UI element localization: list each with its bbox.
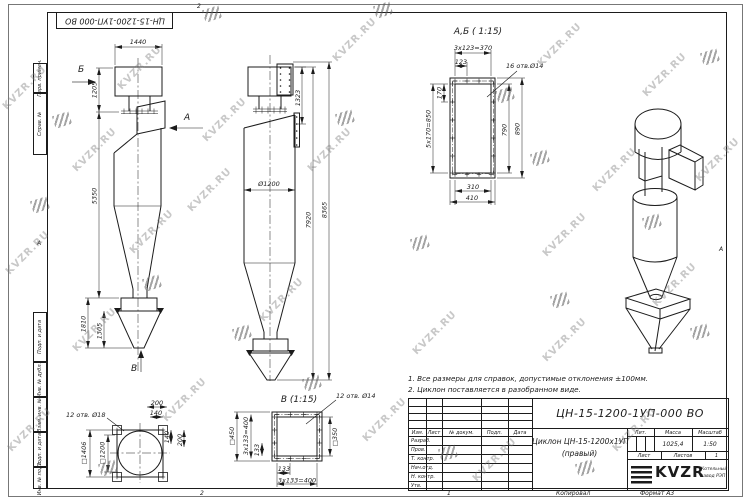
tb-org-line2: завод РЭП — [701, 474, 725, 479]
tb-header-list: Лист — [426, 430, 442, 436]
rivet-dot — [280, 91, 282, 93]
dim-ab-850: 5x170=850 — [425, 110, 433, 148]
view-side-elevation: 1440 1205 5350 1810 1305 Б А В — [72, 38, 203, 374]
dim-side-1305: 1305 — [96, 323, 104, 340]
rivet-dot — [280, 73, 282, 75]
view-detail-v: В (1:15) 12 отв. Ø14 □350 □450 3x133=400… — [228, 392, 375, 487]
tb-row-nkontr: Н. контр. — [411, 474, 435, 480]
dim-bl-200t: 200 — [151, 399, 163, 407]
tb-header-izm: Изм. — [409, 430, 426, 436]
view-arrow-b-label: Б — [78, 65, 84, 75]
tb-title-line2: (правый) — [532, 449, 627, 458]
rivet-dot — [289, 85, 291, 87]
kvzr-coil-icon — [631, 466, 652, 485]
dim-ab-370: 3x123=370 — [454, 44, 492, 52]
rivet-dot — [289, 91, 291, 93]
dim-v-400b: 3x133=400 — [278, 477, 316, 485]
tb-row-tkontr: Т. контр. — [411, 456, 434, 462]
footer-zone: 1 — [447, 490, 451, 497]
tb-doc-number: ЦН-15-1200-1УП-000 ВО — [532, 407, 728, 420]
rivet-dot — [289, 73, 291, 75]
dim-ab-170: 170 — [436, 87, 444, 99]
dim-v-400l: 3x133=400 — [242, 417, 250, 455]
view-front-elevation: 1323 Ø1200 7920 8365 — [244, 55, 332, 381]
tb-title-line1: Циклон ЦН-15-1200х1УП — [532, 437, 627, 446]
dim-ab-410: 410 — [466, 194, 478, 202]
footer-copied: Копировал — [556, 490, 590, 497]
dim-bl-1406: □1406 — [80, 442, 88, 465]
dim-v-133b: 133 — [278, 465, 290, 473]
tb-logo-cell: KVZR Котельный завод РЭП — [627, 459, 728, 490]
rivet-dot — [296, 116, 298, 118]
dim-bl-140r: 140 — [163, 431, 171, 443]
rivet-dot — [280, 79, 282, 81]
note-1: 1. Все размеры для справок, допустимые о… — [408, 374, 648, 383]
tb-row-nachotd: Нач.отд. — [411, 465, 433, 471]
dim-front-diameter: Ø1200 — [257, 180, 280, 188]
tb-sheets-label: Листов — [661, 453, 705, 459]
dim-side-5350: 5350 — [91, 188, 99, 205]
tb-org-line1: Котельный — [701, 467, 727, 472]
title-block: Изм. Лист № докум. Подп. Дата Разраб. Пр… — [408, 398, 729, 491]
footer-format: Формат А3 — [640, 490, 674, 497]
tb-scale-value: 1:50 — [692, 441, 728, 448]
rivet-dot — [280, 67, 282, 69]
tb-row-prov: Пров. — [411, 447, 426, 453]
dim-ab-790: 790 — [501, 124, 509, 136]
tb-sheets-value: 1 — [705, 453, 728, 459]
dim-v-350: □350 — [331, 428, 339, 447]
rivet-dot — [280, 85, 282, 87]
tb-mass-label: Масса — [654, 430, 692, 436]
dim-side-1205: 1205 — [91, 82, 99, 99]
rivet-dot — [296, 130, 298, 132]
dim-bl-140t: 140 — [150, 409, 162, 417]
view-arrow-v-label: В — [131, 364, 137, 374]
dim-side-width: 1440 — [130, 38, 147, 46]
dim-bl-1200: □1200 — [99, 442, 107, 465]
rivet-dot — [289, 67, 291, 69]
detail-v-title: В (1:15) — [281, 395, 317, 405]
tb-row-utv: Утв. — [411, 483, 422, 489]
dim-bl-200r: 200 — [176, 434, 184, 446]
dim-front-7920: 7920 — [305, 212, 313, 229]
tb-scale-label: Масштаб — [692, 430, 728, 436]
dim-front-8365: 8365 — [321, 202, 329, 219]
tb-lit-label: Лит. — [627, 430, 654, 436]
tb-row-razrab: Разраб. — [411, 438, 431, 444]
rivet-dot — [289, 79, 291, 81]
tb-mass-value: 1025,4 — [654, 441, 692, 448]
drawing-sheet: Перв. примен. Справ. № Подп. и дата Инв.… — [0, 0, 750, 500]
dim-front-1323: 1323 — [294, 90, 302, 107]
rivet-dot — [296, 123, 298, 125]
dim-ab-890: 890 — [514, 123, 522, 135]
view-isometric — [626, 109, 703, 353]
dim-v-450: □450 — [228, 427, 236, 446]
tb-header-podp: Подп. — [481, 430, 508, 436]
tb-header-data: Дата — [508, 430, 532, 436]
view-detail-bottom-flange: 12 отв. Ø18 200 140 140 200 □1406 □1200 — [66, 399, 184, 483]
dim-ab-123: 123 — [455, 58, 467, 66]
tb-header-doc: № докум. — [442, 430, 481, 436]
tb-sheet-label: Лист — [627, 453, 661, 459]
dim-v-133l: 133 — [253, 444, 261, 456]
kvzr-logo-text: KVZR — [655, 463, 705, 481]
dim-side-1810: 1810 — [80, 316, 88, 333]
dim-bl-holes: 12 отв. Ø18 — [66, 411, 105, 419]
detail-ab-title: А,Б ( 1:15) — [453, 27, 502, 37]
rivet-dot — [296, 137, 298, 139]
view-detail-ab: А,Б ( 1:15) 16 отв.Ø14 3x123=370 123 170… — [425, 27, 544, 205]
dim-v-holes: 12 отв. Ø14 — [336, 392, 375, 400]
dim-ab-310: 310 — [467, 183, 479, 191]
view-arrow-a-label: А — [183, 113, 190, 123]
rivet-dot — [296, 144, 298, 146]
note-2: 2. Циклон поставляется в разобранном вид… — [408, 385, 581, 394]
dim-ab-holes: 16 отв.Ø14 — [506, 62, 543, 70]
